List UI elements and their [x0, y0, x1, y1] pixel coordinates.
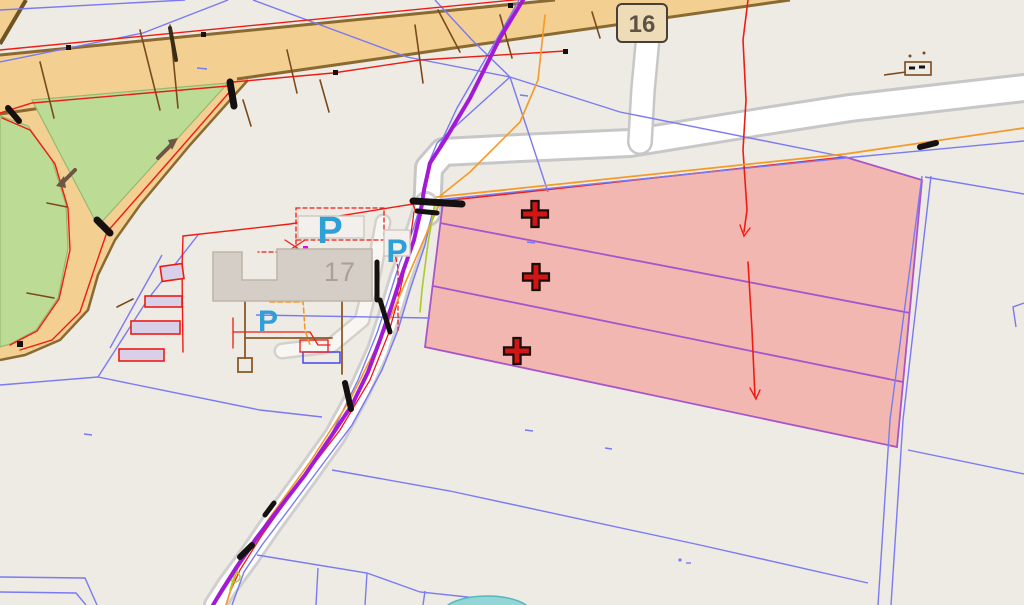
route-16-shield[interactable]: 16: [617, 4, 667, 42]
parking-icon[interactable]: P: [386, 233, 407, 269]
parking-icon[interactable]: P: [317, 210, 342, 252]
small-building[interactable]: [131, 321, 180, 334]
map-canvas[interactable]: 17 PPP 16: [0, 0, 1024, 605]
small-building[interactable]: [119, 349, 164, 361]
route-16-label: 16: [629, 11, 656, 38]
map-viewport[interactable]: 17 PPP 16: [0, 0, 1024, 605]
small-building[interactable]: [145, 296, 182, 307]
small-building[interactable]: [160, 264, 184, 282]
building-17-label: 17: [324, 257, 356, 287]
parking-icon[interactable]: P: [258, 305, 278, 338]
